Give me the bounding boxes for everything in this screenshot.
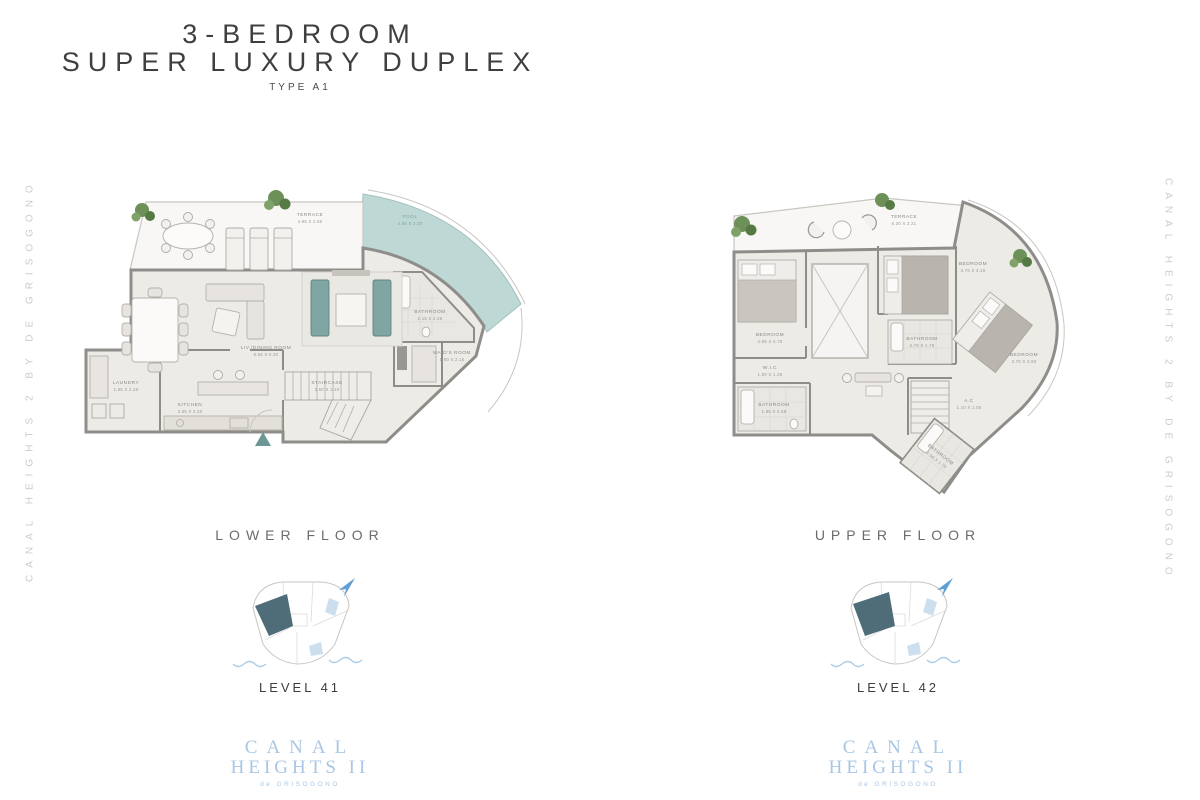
keyplan-level-42 <box>823 570 973 680</box>
level-41-label: LEVEL 41 <box>0 680 600 695</box>
lower-floor-caption: LOWER FLOOR <box>0 527 600 543</box>
floorplan-sheet: 3-BEDROOM SUPER LUXURY DUPLEX TYPE A1 CA… <box>0 0 1200 800</box>
level-42-label: LEVEL 42 <box>598 680 1198 695</box>
brand-logo: CANAL HEIGHTS II de GRISOGONO <box>598 737 1198 788</box>
wave-line <box>927 658 960 663</box>
wave-line <box>329 658 362 663</box>
lower-floor-column: LOWER FLOOR LEVEL 41 CANAL HEIGHTS II de… <box>0 0 600 800</box>
wave-line <box>831 662 864 667</box>
upper-floor-column: UPPER FLOOR LEVEL 42 CANAL HEIGHTS II de… <box>598 0 1198 800</box>
keyplan-level-41 <box>225 570 375 680</box>
upper-floor-caption: UPPER FLOOR <box>598 527 1198 543</box>
wave-line <box>233 662 266 667</box>
brand-logo: CANAL HEIGHTS II de GRISOGONO <box>0 737 600 788</box>
